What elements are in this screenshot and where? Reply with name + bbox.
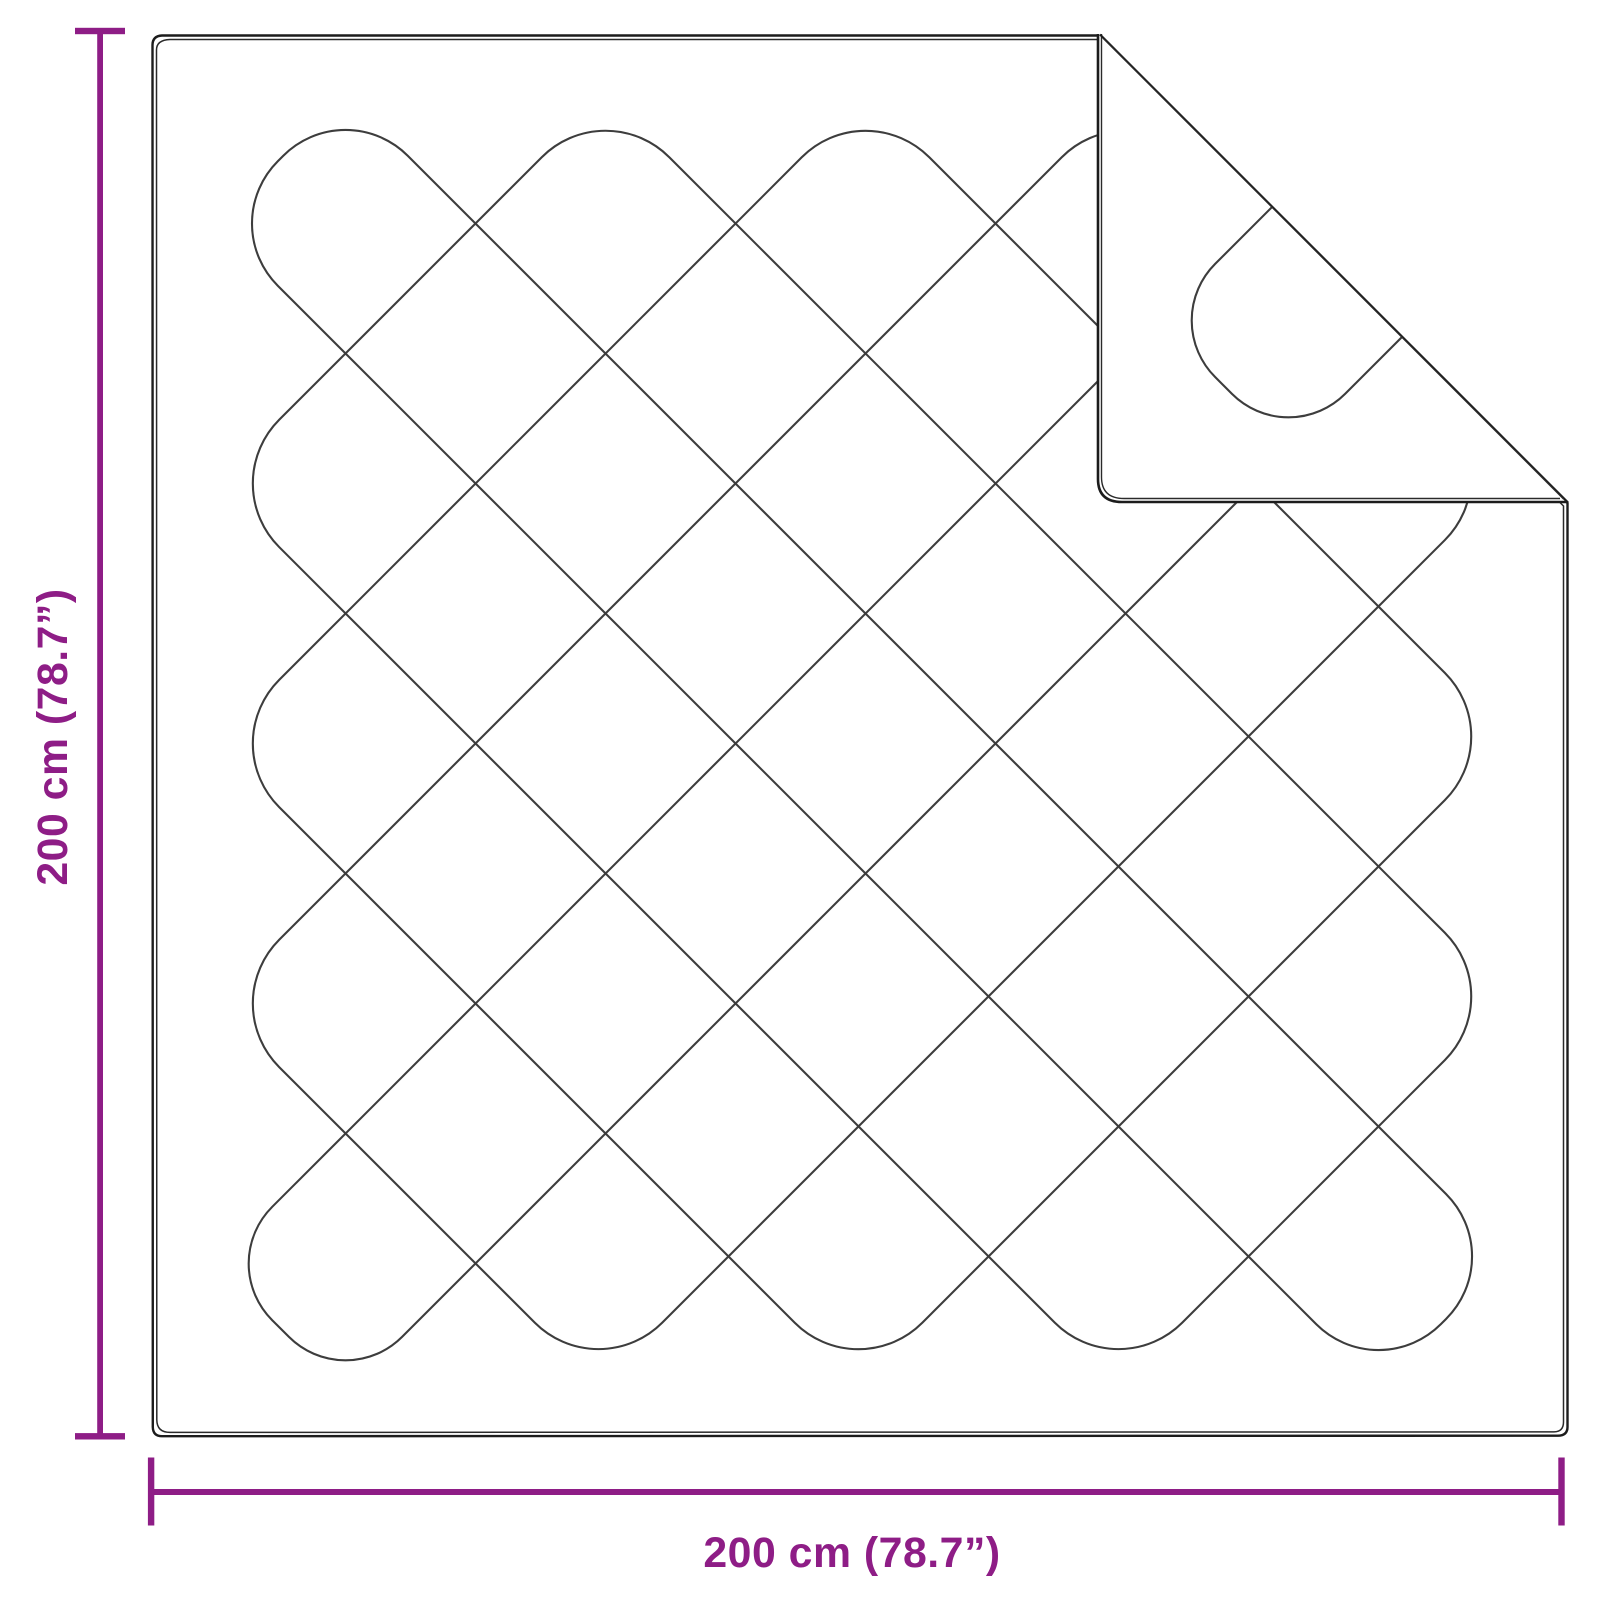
svg-text:200 cm (78.7”): 200 cm (78.7”) bbox=[29, 588, 77, 885]
svg-text:200 cm (78.7”): 200 cm (78.7”) bbox=[703, 1529, 1000, 1577]
